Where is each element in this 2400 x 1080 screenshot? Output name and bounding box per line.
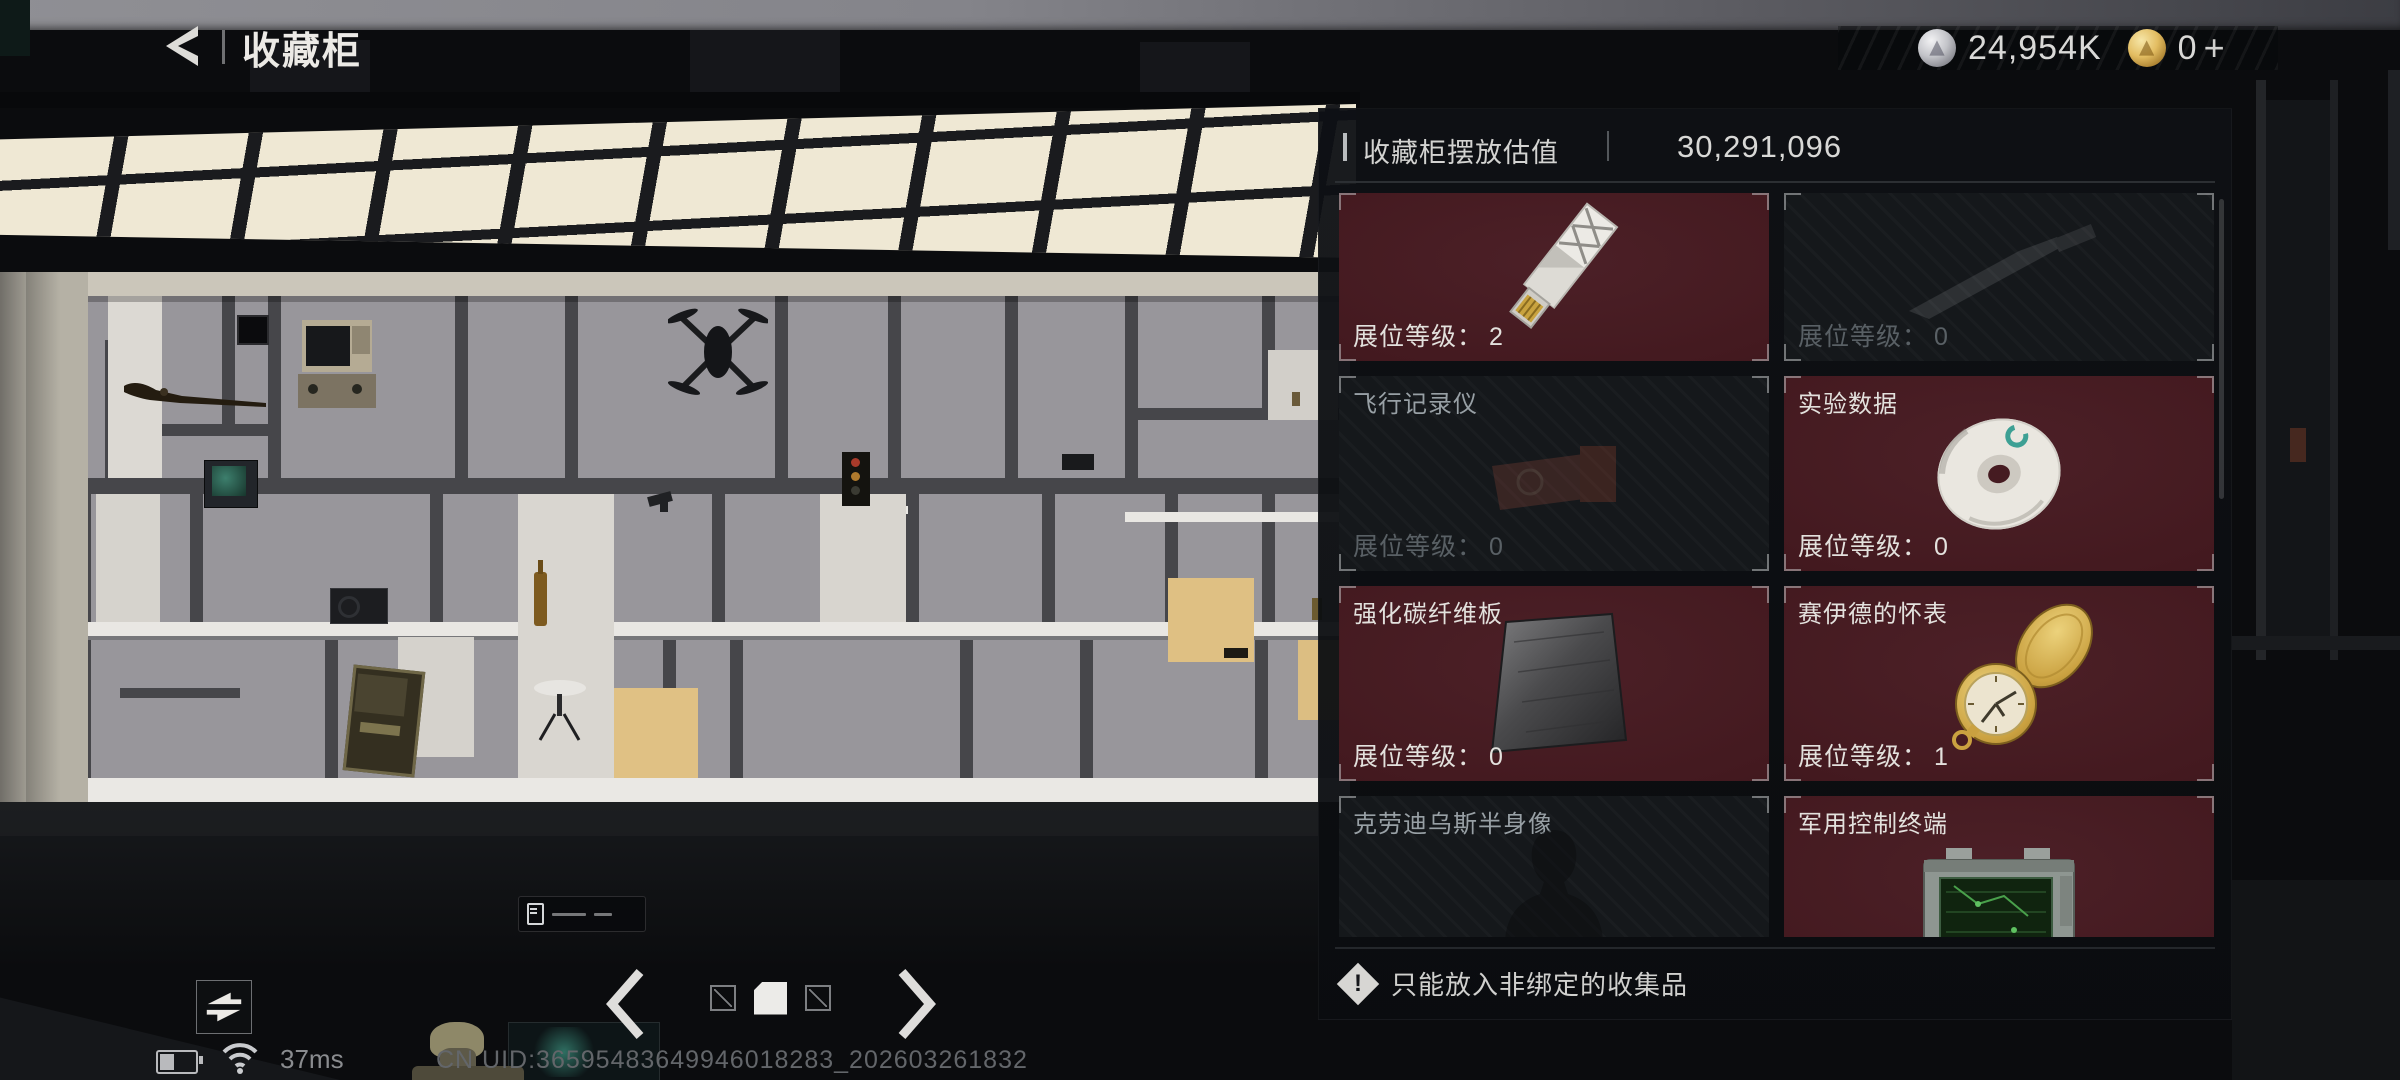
cabinet-grid-rect: [96, 494, 160, 622]
window-mullion: [2330, 80, 2338, 660]
ceiling-fixture: [690, 30, 840, 92]
collection-card[interactable]: 展位等级：2: [1339, 193, 1769, 361]
flight-recorder-ghost-image: [1434, 404, 1674, 544]
character-nameplate: [518, 896, 646, 932]
gold-amount: 0: [2178, 29, 2198, 68]
cabinet-value-panel: 收藏柜摆放估值 30,291,096: [1318, 108, 2232, 1020]
cabinet-grid-rect: [430, 494, 443, 622]
add-currency-plus[interactable]: +: [2204, 27, 2225, 69]
item-level: 展位等级：2: [1353, 317, 1504, 353]
cabinet-grid-rect: [1042, 494, 1055, 622]
cabinet-grid-rect: [1255, 637, 1268, 778]
window-sill: [2232, 636, 2400, 650]
panel-scrollbar[interactable]: [2219, 199, 2224, 499]
retro-computer-side: [352, 326, 370, 354]
cabinet-grid-rect: [775, 296, 788, 478]
panel-value: 30,291,096: [1677, 129, 1842, 165]
page-title: 收藏柜: [242, 20, 362, 75]
battery-icon: [156, 1050, 198, 1074]
collection-card[interactable]: 克劳迪乌斯半身像: [1339, 796, 1769, 937]
cabinet-grid-rect: [1080, 637, 1093, 778]
page-indicator[interactable]: [754, 982, 787, 1015]
collection-card[interactable]: 展位等级：0: [1784, 193, 2214, 361]
traffic-light-amber: [851, 472, 860, 481]
cabinet-grid-rect: [960, 637, 973, 778]
title-divider: [222, 30, 225, 64]
window-pane: [2266, 100, 2330, 640]
small-trinket-item: [1292, 392, 1300, 406]
cabinet-grid-rect: [730, 637, 743, 778]
small-trinket-item: [1224, 648, 1248, 658]
window-light-sliver: [2388, 70, 2400, 250]
view-toggle-button[interactable]: [196, 980, 252, 1034]
item-name: 实验数据: [1798, 384, 1898, 419]
cabinet: [0, 272, 1350, 802]
cabinet-grid-rect: [518, 494, 614, 778]
cabinet-grid-rect: [190, 494, 203, 622]
traffic-light-green: [851, 486, 860, 495]
corner-panel: [0, 0, 30, 56]
ping-value: 37ms: [280, 1044, 344, 1075]
page-indicators: [710, 980, 831, 1016]
small-device-item: [1062, 454, 1094, 470]
radio-knob: [352, 384, 362, 394]
cabinet-grid-rect: [565, 296, 578, 478]
item-level: 展位等级：1: [1798, 737, 1949, 773]
ceiling-light-panels: [0, 104, 1356, 258]
cabinet-grid-rect: [612, 688, 698, 778]
alert-diamond-icon: !: [1337, 962, 1379, 1004]
cabinet-grid-rect: [455, 296, 468, 478]
back-button[interactable]: [152, 22, 212, 70]
wifi-icon: [220, 1040, 260, 1074]
bust-ghost-image: [1474, 824, 1634, 938]
window-object: [2290, 428, 2306, 462]
drone-item: [668, 300, 768, 405]
prev-page-button[interactable]: [602, 966, 648, 1047]
panel-title-separator: [1607, 131, 1609, 161]
silver-amount: 24,954K: [1968, 29, 2102, 68]
panel-accent-bar: [1343, 133, 1347, 161]
item-level: 展位等级：0: [1353, 527, 1504, 563]
cabinet-grid-rect: [820, 494, 906, 622]
retro-computer-screen: [306, 326, 350, 366]
ceiling-fixture: [1140, 42, 1250, 92]
collection-grid: 展位等级：2 展位等级：0 飞行记录仪: [1339, 193, 2214, 937]
collection-card[interactable]: 强化碳纤维板 展位等级：0: [1339, 586, 1769, 781]
cabinet-grid-rect: [120, 688, 240, 698]
collection-card[interactable]: 赛伊德的怀表 展位等级：1: [1784, 586, 2214, 781]
floor: [0, 802, 1350, 1080]
military-case-lid: [354, 673, 408, 716]
collection-card[interactable]: 飞行记录仪 展位等级：0: [1339, 376, 1769, 571]
radio-knob: [308, 384, 318, 394]
cabinet-grid-rect: [0, 478, 1350, 494]
military-terminal-image: [1894, 842, 2104, 937]
item-level: 展位等级：0: [1798, 317, 1949, 353]
cabinet-grid-rect: [888, 296, 901, 478]
next-page-button[interactable]: [894, 966, 940, 1047]
back-chevron-icon: [162, 24, 202, 68]
page-indicator[interactable]: [710, 985, 736, 1011]
gold-coin-icon: [2128, 29, 2166, 67]
cabinet-grid-rect: [712, 494, 725, 622]
warning-row: ! 只能放入非绑定的收集品: [1343, 965, 1688, 1002]
silver-coin-icon: [1918, 29, 1956, 67]
warning-text: 只能放入非绑定的收集品: [1391, 965, 1688, 1002]
cabinet-grid-rect: [0, 778, 1350, 802]
cabinet-grid-rect: [1125, 296, 1138, 478]
panel-divider: [1335, 181, 2215, 183]
chevron-right-icon: [894, 966, 940, 1042]
uid-text: CN UID:36595483649946018283_202603261832: [436, 1046, 1028, 1075]
cabinet-grid-rect: [0, 636, 1350, 640]
nameplate-mark: [552, 913, 586, 916]
handgun-grip: [660, 500, 668, 512]
ceiling-beam: [0, 92, 1360, 108]
camera-lens-ring: [338, 596, 360, 618]
chevron-left-icon: [602, 966, 648, 1042]
collection-cabinet-screen: 收藏柜 24,954K 0 + 收藏柜摆放估值 30,291,096: [0, 0, 2400, 1080]
counter-shadow: [0, 802, 1318, 836]
cabinet-grid-rect: [1005, 296, 1018, 478]
cd-disc-image: [1884, 399, 2114, 549]
warning-divider: [1335, 947, 2215, 949]
collection-card[interactable]: 军用控制终端: [1784, 796, 2214, 937]
musket-item: [120, 372, 270, 418]
item-name: 军用控制终端: [1798, 804, 1948, 839]
left-vignette: [0, 272, 60, 802]
bottle-neck: [538, 560, 543, 574]
item-level: 展位等级：0: [1353, 737, 1504, 773]
cabinet-grid-rect: [0, 272, 1350, 296]
cabinet-grid-rect: [325, 637, 338, 778]
monitor-device-screen: [212, 466, 246, 496]
clipboard-icon: [527, 903, 544, 925]
framed-picture-item: [237, 315, 269, 345]
panel-title: 收藏柜摆放估值: [1363, 131, 1559, 170]
nameplate-mark: [594, 913, 612, 916]
collection-card[interactable]: 实验数据 展位等级：0: [1784, 376, 2214, 571]
bottle-item: [534, 572, 547, 626]
swap-arrows-icon: [202, 985, 246, 1029]
item-level: 展位等级：0: [1798, 527, 1949, 563]
cabinet-grid-rect: [0, 622, 1350, 636]
page-indicator[interactable]: [805, 985, 831, 1011]
round-table-stem: [557, 694, 562, 716]
currency-bar[interactable]: 24,954K 0 +: [1838, 26, 2278, 70]
window-mullion: [2256, 80, 2266, 660]
traffic-light-red: [851, 458, 860, 467]
cabinet-grid-rect: [1125, 512, 1350, 522]
right-floor: [2232, 880, 2400, 1080]
